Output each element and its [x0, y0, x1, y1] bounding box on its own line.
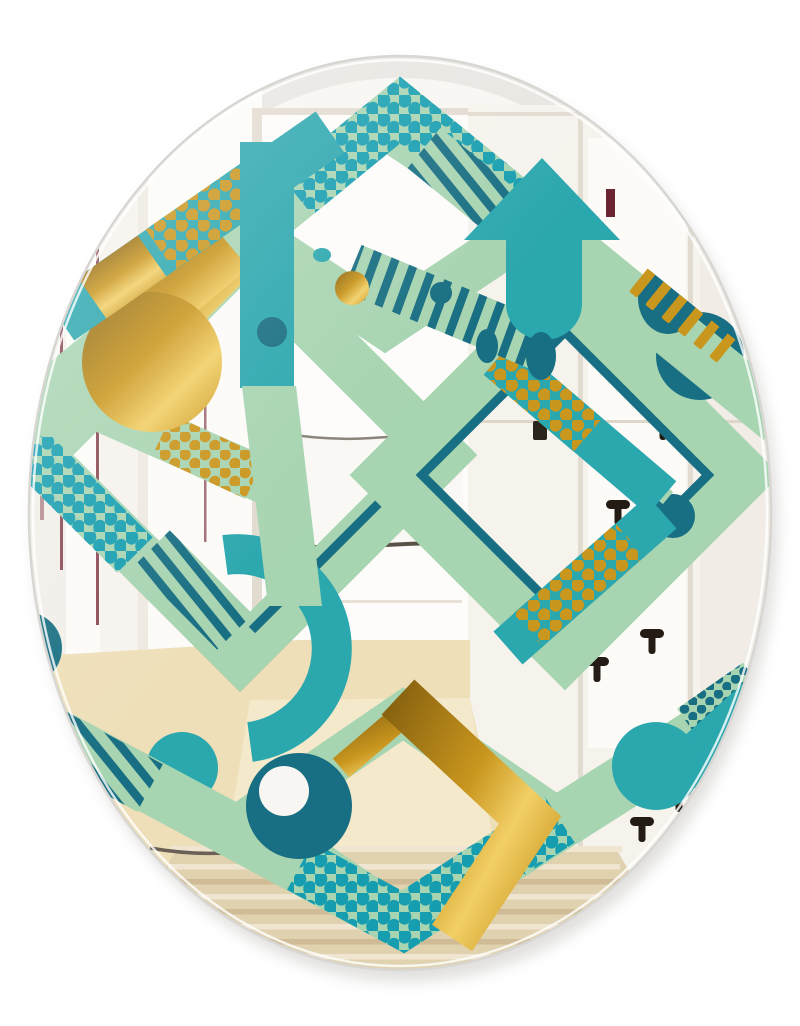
- product-photo: [0, 0, 800, 1026]
- mirror-photo: [0, 0, 800, 1026]
- rug-stripe: [104, 984, 692, 990]
